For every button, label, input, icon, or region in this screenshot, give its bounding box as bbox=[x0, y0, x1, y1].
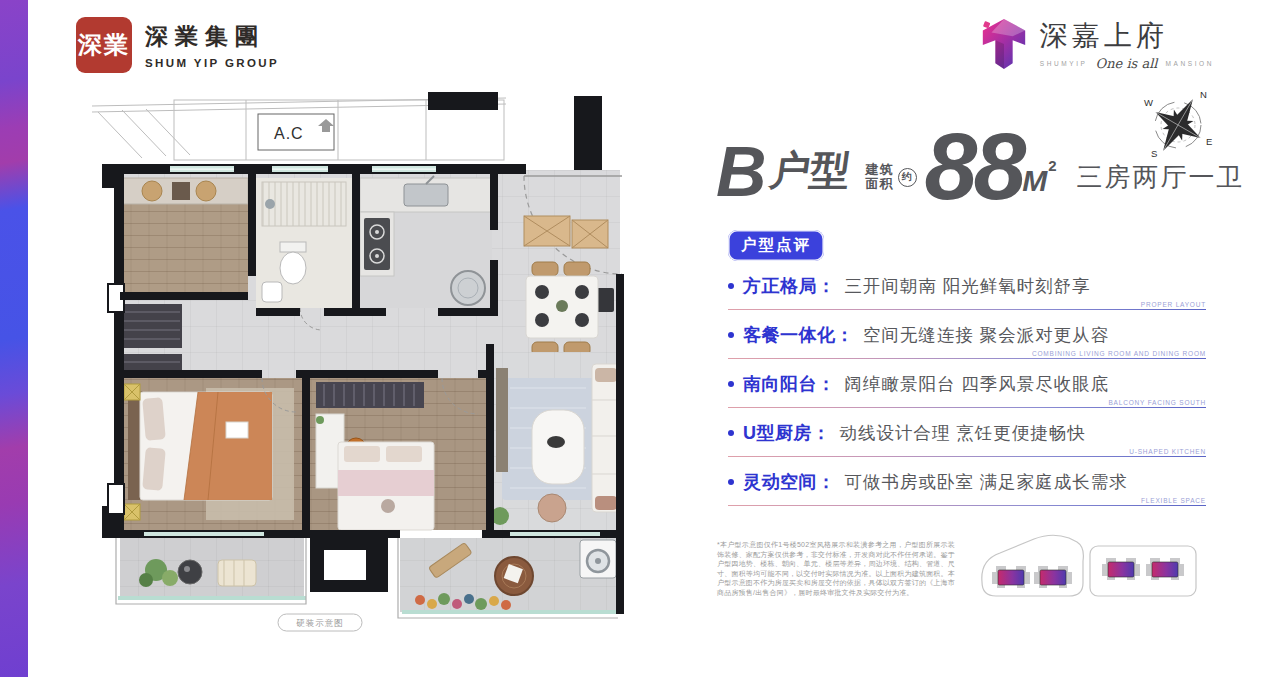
area-label: 建筑 面积 bbox=[866, 163, 894, 193]
floor-plan: A.C bbox=[86, 92, 648, 648]
group-name-cn: 深業集團 bbox=[145, 21, 279, 52]
project-logo-text: 深嘉上府 SHUMYIP One is all MANSION bbox=[1040, 17, 1214, 71]
second-bedroom bbox=[310, 378, 486, 530]
site-key-diagrams bbox=[972, 530, 1202, 612]
plan-caption: 硬装示意图 bbox=[296, 618, 344, 628]
feature-label: 南向阳台： bbox=[743, 372, 836, 396]
area-unit: M bbox=[1022, 164, 1047, 198]
feature-desc: 三开间朝南 阳光鲜氧时刻舒享 bbox=[845, 274, 1091, 298]
compass-w: W bbox=[1144, 97, 1153, 108]
area-label-block: 建筑 面积 约 bbox=[866, 163, 917, 193]
ac-label: A.C bbox=[274, 125, 304, 142]
group-logo-text: 深業集團 SHUM YIP GROUP bbox=[145, 21, 279, 69]
feature-en: BALCONY FACING SOUTH bbox=[728, 399, 1206, 406]
feature-label: 方正格局： bbox=[743, 274, 836, 298]
feature-desc: 可做书房或卧室 满足家庭成长需求 bbox=[845, 470, 1128, 494]
approx-circle: 约 bbox=[898, 168, 917, 187]
feature-en: COMBINING LIVING ROOM AND DINING ROOM bbox=[728, 350, 1206, 357]
left-gradient-stripe bbox=[0, 0, 28, 677]
project-logo-subline: SHUMYIP One is all MANSION bbox=[1040, 56, 1214, 71]
feature-en: PROPER LAYOUT bbox=[728, 301, 1206, 308]
project-logo: 深嘉上府 SHUMYIP One is all MANSION bbox=[978, 16, 1214, 72]
feature-divider bbox=[728, 456, 1206, 457]
feature-desc: 动线设计合理 烹饪更便捷畅快 bbox=[840, 421, 1086, 445]
unit-headline: B 户型 建筑 面积 约 88 M 2 三房两厅一卫 bbox=[716, 132, 1245, 200]
feature-item-2: 客餐一体化： 空间无缝连接 聚会派对更从容 COMBINING LIVING R… bbox=[728, 323, 1206, 359]
feature-label: 客餐一体化： bbox=[743, 323, 854, 347]
area-exponent: 2 bbox=[1048, 157, 1056, 174]
info-panel: N W S E B 户型 建筑 面积 约 88 M 2 三房两厅一卫 户型点评 bbox=[714, 90, 1216, 656]
kitchen bbox=[360, 176, 492, 308]
feature-label: 灵动空间： bbox=[743, 470, 836, 494]
living-room bbox=[491, 352, 622, 530]
project-mark-icon bbox=[978, 16, 1030, 72]
shumyip-seal-icon: 深業 bbox=[76, 17, 132, 73]
feature-divider bbox=[728, 309, 1206, 310]
poster-page: 深業 深業集團 SHUM YIP GROUP 深嘉上府 SHUMYIP One … bbox=[0, 0, 1280, 677]
master-bedroom bbox=[120, 378, 302, 530]
feature-label: U型厨房： bbox=[743, 421, 831, 445]
balcony-left bbox=[116, 538, 306, 604]
feature-divider bbox=[728, 407, 1206, 408]
bullet-icon bbox=[728, 430, 734, 436]
project-sub-suffix: MANSION bbox=[1165, 60, 1214, 67]
feature-desc: 空间无缝连接 聚会派对更从容 bbox=[863, 323, 1109, 347]
water-heater-icon bbox=[451, 271, 485, 305]
feature-divider bbox=[728, 505, 1206, 506]
feature-item-3: 南向阳台： 阔绰瞰景阳台 四季风景尽收眼底 BALCONY FACING SOU… bbox=[728, 372, 1206, 408]
area-unit-block: M 2 bbox=[1022, 164, 1056, 200]
feature-item-4: U型厨房： 动线设计合理 烹饪更便捷畅快 U-SHAPED KITCHEN bbox=[728, 421, 1206, 457]
disclaimer-text: *本户型示意图仅作1号楼502室风格展示和装潢参考之用，户型图所展示装饰装修、家… bbox=[717, 540, 955, 598]
project-sub-prefix: SHUMYIP bbox=[1040, 60, 1088, 67]
feature-item-1: 方正格局： 三开间朝南 阳光鲜氧时刻舒享 PROPER LAYOUT bbox=[728, 274, 1206, 310]
shumyip-group-logo: 深業 深業集團 SHUM YIP GROUP bbox=[76, 17, 279, 73]
bullet-icon bbox=[728, 332, 734, 338]
feature-divider bbox=[728, 358, 1206, 359]
balcony-right bbox=[398, 538, 618, 618]
bullet-icon bbox=[728, 283, 734, 289]
unit-letter: B bbox=[716, 144, 765, 200]
review-badge: 户型点评 bbox=[728, 230, 824, 261]
feature-item-5: 灵动空间： 可做书房或卧室 满足家庭成长需求 FLEXIBLE SPACE bbox=[728, 470, 1206, 506]
feature-desc: 阔绰瞰景阳台 四季风景尽收眼底 bbox=[845, 372, 1110, 396]
bathroom bbox=[256, 178, 352, 308]
group-name-en: SHUM YIP GROUP bbox=[145, 57, 279, 69]
project-sub-script: One is all bbox=[1096, 56, 1158, 71]
tv-console-icon bbox=[496, 368, 508, 472]
area-value: 88 bbox=[925, 132, 1023, 200]
project-name-cn: 深嘉上府 bbox=[1040, 17, 1214, 55]
ac-unit-box: A.C bbox=[258, 114, 334, 150]
feature-en: FLEXIBLE SPACE bbox=[728, 497, 1206, 504]
bullet-icon bbox=[728, 381, 734, 387]
compass-n: N bbox=[1200, 89, 1207, 100]
bullet-icon bbox=[728, 479, 734, 485]
feature-list: 方正格局： 三开间朝南 阳光鲜氧时刻舒享 PROPER LAYOUT 客餐一体化… bbox=[728, 274, 1206, 519]
unit-word: 户型 bbox=[766, 143, 854, 200]
plan-caption-pill: 硬装示意图 bbox=[278, 614, 362, 631]
feature-en: U-SHAPED KITCHEN bbox=[728, 448, 1206, 455]
stove-icon bbox=[364, 218, 390, 270]
study-room bbox=[120, 178, 248, 296]
layout-text: 三房两厅一卫 bbox=[1077, 160, 1245, 200]
